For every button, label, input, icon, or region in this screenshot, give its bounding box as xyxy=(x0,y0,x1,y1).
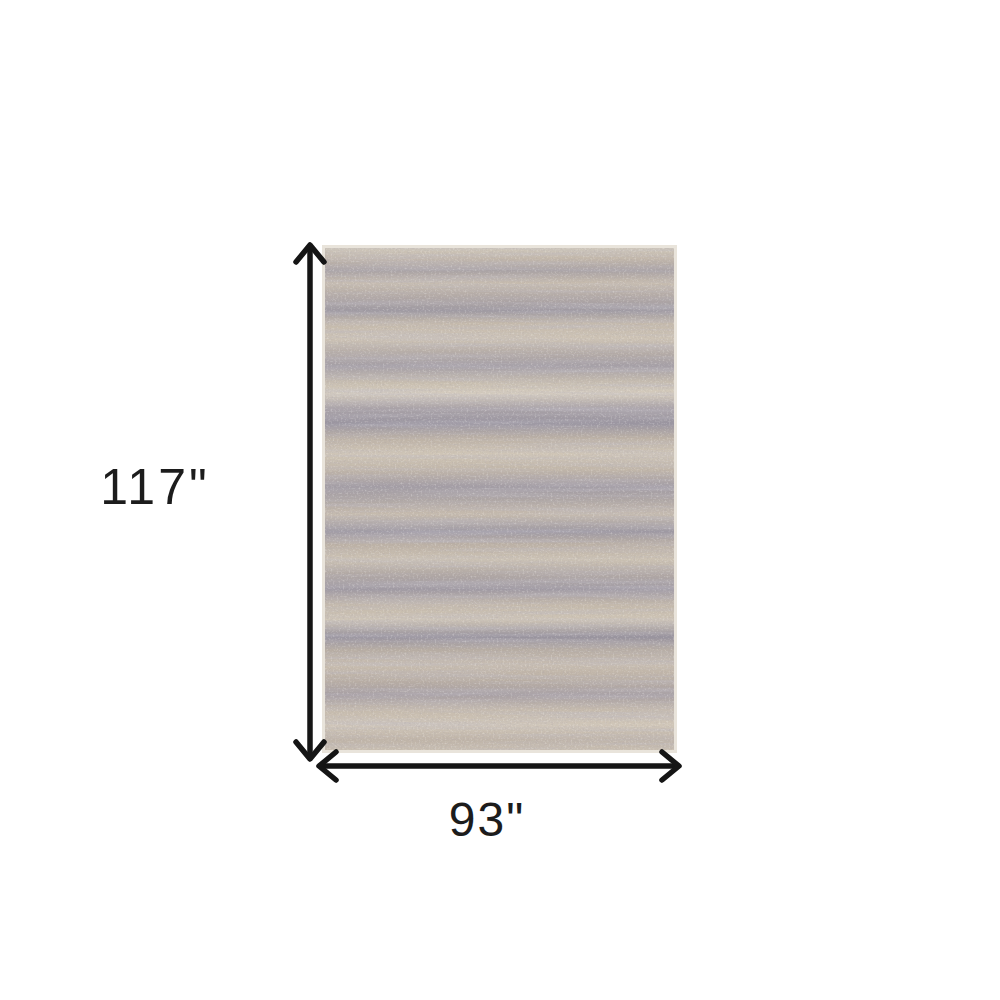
rug-image xyxy=(322,245,677,753)
height-arrow xyxy=(288,236,332,768)
width-dimension-label: 93" xyxy=(417,796,557,844)
width-arrow xyxy=(310,744,688,788)
rug-texture xyxy=(325,248,674,750)
rug-dimensions-diagram: 117" 93" xyxy=(0,0,1000,1000)
height-dimension-label: 117" xyxy=(85,462,225,512)
